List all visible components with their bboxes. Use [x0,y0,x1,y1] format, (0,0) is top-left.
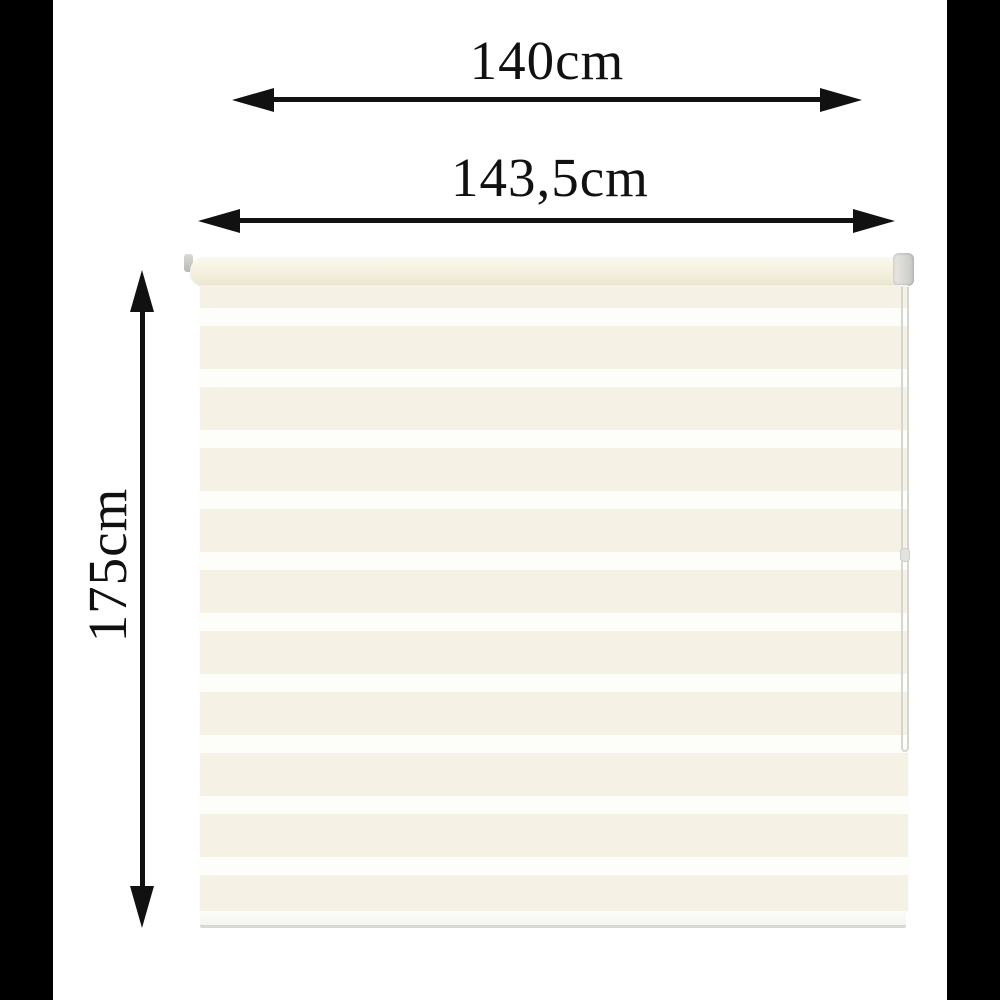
arrow-right-icon [820,88,862,112]
fabric-stripes [200,326,908,912]
arrow-line [140,306,145,892]
fabric-top-band [200,285,908,326]
height-label: 175cm [77,465,137,665]
arrow-line [234,218,862,223]
right-black-bar [947,0,1000,1000]
fabric-width-label: 140cm [397,33,697,88]
zebra-fabric-panel [200,285,908,912]
bottom-rail [200,911,906,928]
chain-connector [900,548,910,562]
chain-mechanism-cap [893,253,914,286]
total-width-label: 143,5cm [400,150,700,205]
roller-tube [190,257,912,286]
pull-chain-loop [901,287,909,752]
product-dimension-diagram: 140cm 143,5cm 175cm [0,0,1000,1000]
arrow-line [268,97,826,102]
left-black-bar [0,0,53,1000]
arrow-right-icon [853,209,895,233]
arrow-down-icon [130,886,154,928]
